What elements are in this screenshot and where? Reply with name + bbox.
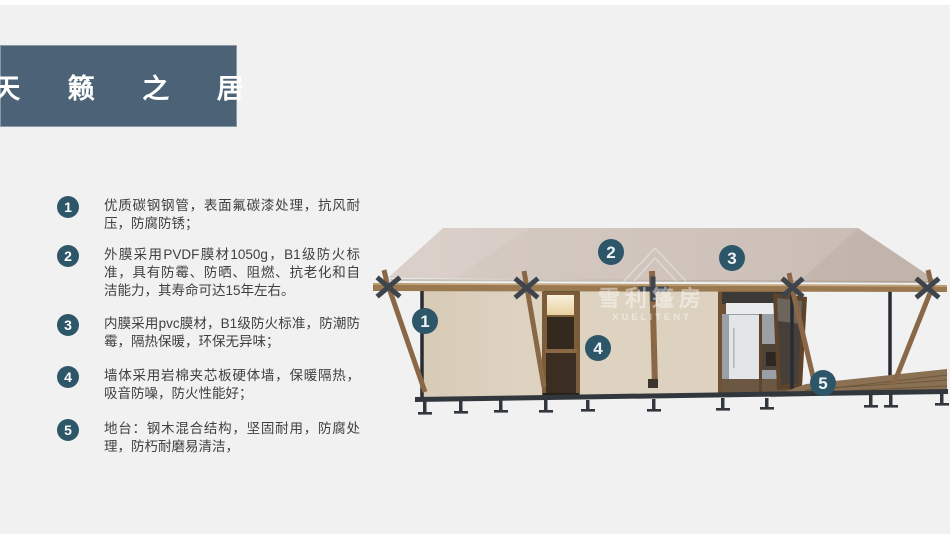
feature-number-badge: 4: [57, 366, 79, 388]
badge-number: 5: [818, 374, 827, 393]
roof-canopy: [388, 228, 940, 283]
diagram-badge-3: 3: [719, 245, 745, 271]
slide: 天 籁 之 居 1 优质碳钢钢管，表面氟碳漆处理，抗风耐压，防腐防锈； 2 外膜…: [0, 0, 950, 534]
feature-number-badge: 1: [57, 196, 79, 218]
diagram-badge-5: 5: [810, 370, 836, 396]
feature-text: 地台：钢木混合结构，坚固耐用，防腐处理，防朽耐磨易清洁，: [104, 420, 360, 456]
badge-number: 2: [606, 243, 615, 262]
pole-foot: [648, 379, 658, 388]
feature-text: 优质碳钢钢管，表面氟碳漆处理，抗风耐压，防腐防锈；: [104, 197, 360, 233]
diagram-badge-1: 1: [412, 308, 438, 334]
tent-render: 雪利篷房 XUELITENT 1 2 3 4 5: [360, 200, 950, 445]
badge-number: 4: [593, 339, 603, 358]
diagram-badge-4: 4: [585, 335, 611, 361]
watermark-en: XUELITENT: [612, 312, 692, 323]
badge-number: 3: [727, 249, 736, 268]
feature-text: 外膜采用PVDF膜材1050g，B1级防火标准，具有防霉、防晒、阻燃、抗老化和自…: [104, 246, 360, 300]
diagram-badge-2: 2: [598, 239, 624, 265]
feature-text: 墙体采用岩棉夹芯板硬体墙，保暖隔热，吸音防噪，防火性能好；: [104, 367, 360, 403]
entrance-door: [542, 287, 580, 397]
feature-text: 内膜采用pvc膜材，B1级防火标准，防潮防霉，隔热保暖，环保无异味；: [104, 315, 360, 351]
badge-number: 1: [420, 312, 429, 331]
watermark-cn: 雪利篷房: [598, 286, 706, 311]
feature-number-badge: 3: [57, 314, 79, 336]
feature-number-badge: 5: [57, 419, 79, 441]
feature-number-badge: 2: [57, 245, 79, 267]
open-glass-door: [773, 293, 807, 390]
feature-list: 1 优质碳钢钢管，表面氟碳漆处理，抗风耐压，防腐防锈； 2 外膜采用PVDF膜材…: [0, 0, 370, 534]
